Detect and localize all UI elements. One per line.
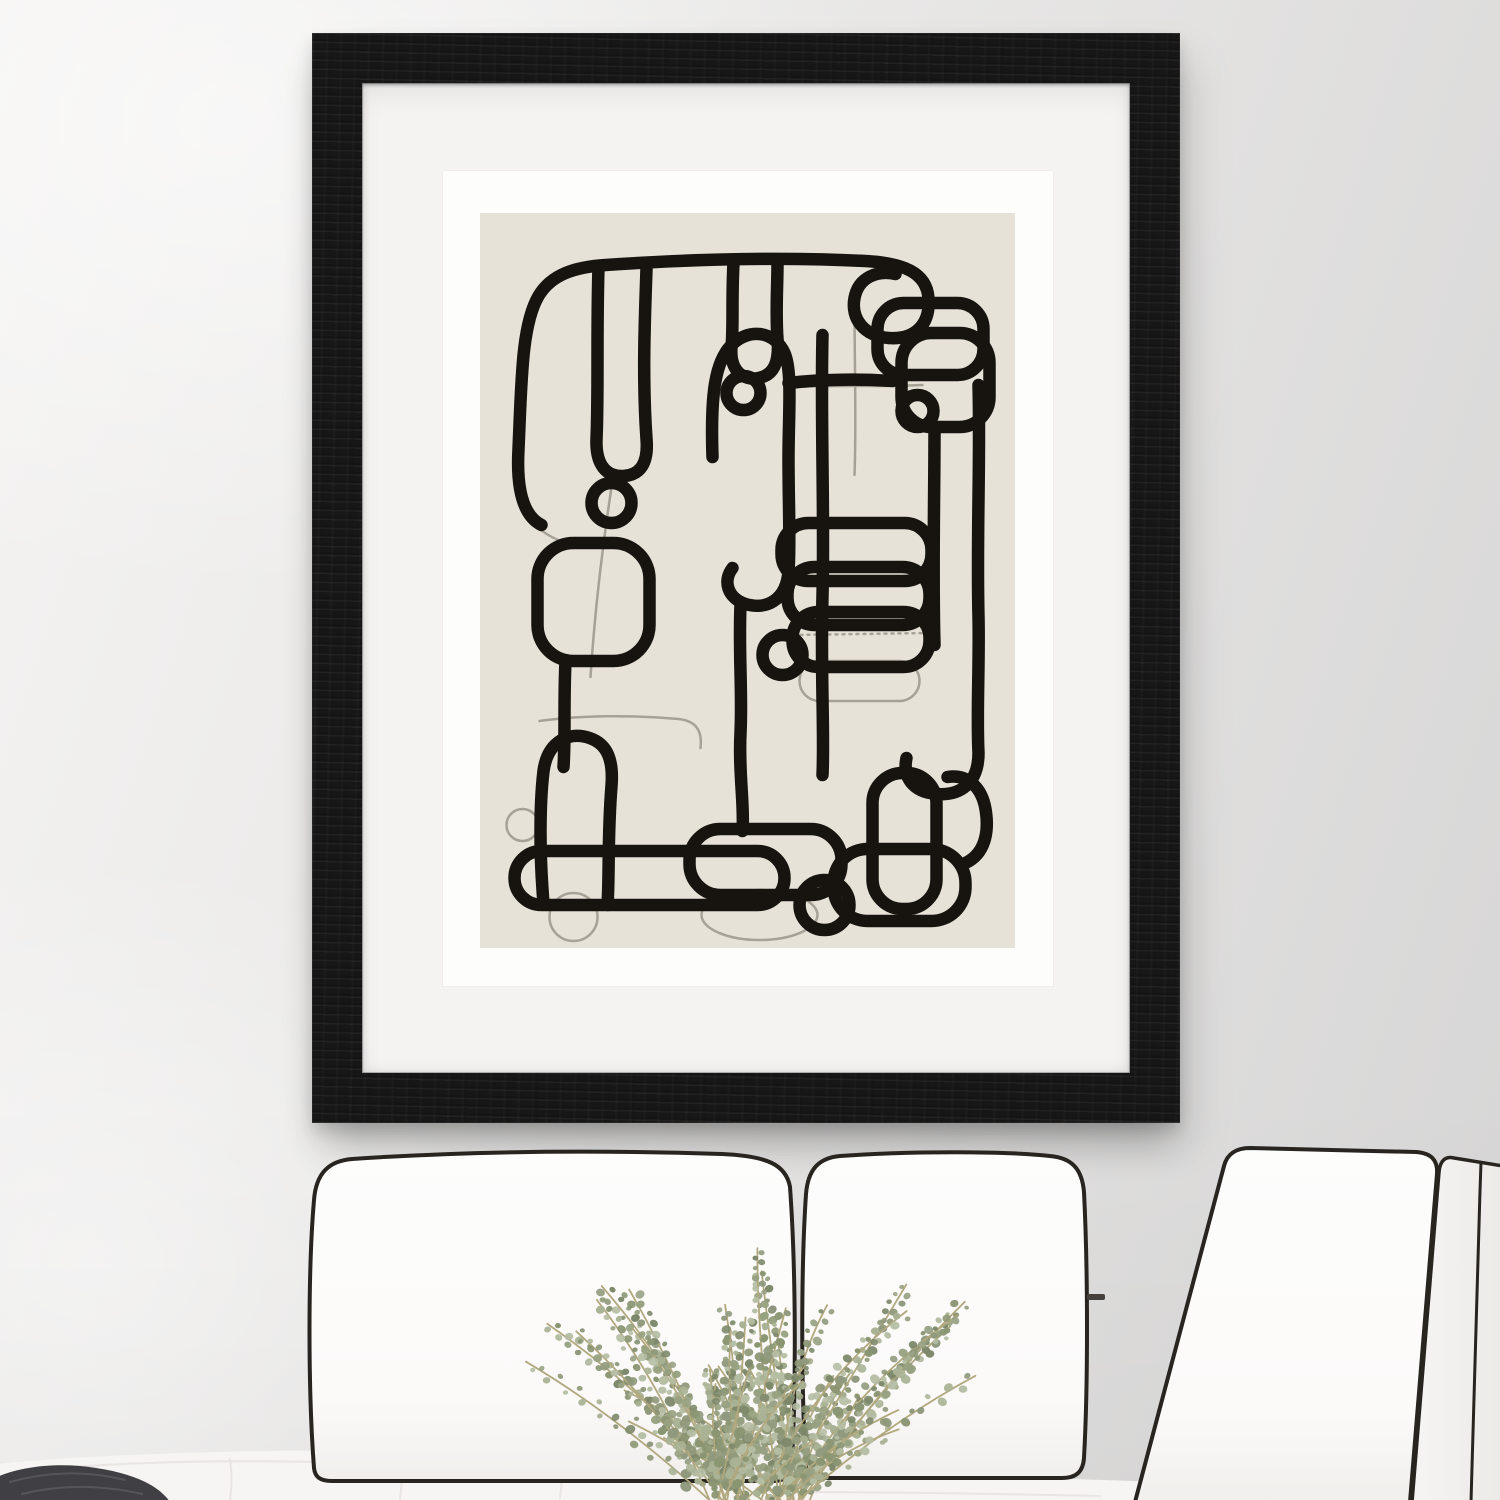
frame-bracket <box>1087 1294 1105 1300</box>
plant-leaf <box>603 1353 610 1359</box>
living-room-scene: Black wood picture frame with a white ma… <box>0 0 1500 1500</box>
scene-description: Black wood picture frame with a white ma… <box>0 0 1 1</box>
plant-leaf <box>855 1348 861 1353</box>
plant-leaf <box>634 1340 640 1345</box>
art-print-paper <box>443 171 1053 986</box>
picture-frame <box>312 33 1180 1123</box>
plant-leaf <box>687 1393 693 1398</box>
line-art-canvas <box>480 213 1015 948</box>
thick-brush-strokes <box>515 259 990 930</box>
mat-board <box>362 83 1130 1073</box>
side-cushion-front <box>1135 1148 1437 1500</box>
abstract-line-artwork <box>480 213 1015 948</box>
plant-leaf <box>846 1426 853 1432</box>
plant-leaf <box>769 1476 776 1482</box>
sofa <box>0 1120 1500 1500</box>
plant-leaf <box>725 1311 732 1317</box>
